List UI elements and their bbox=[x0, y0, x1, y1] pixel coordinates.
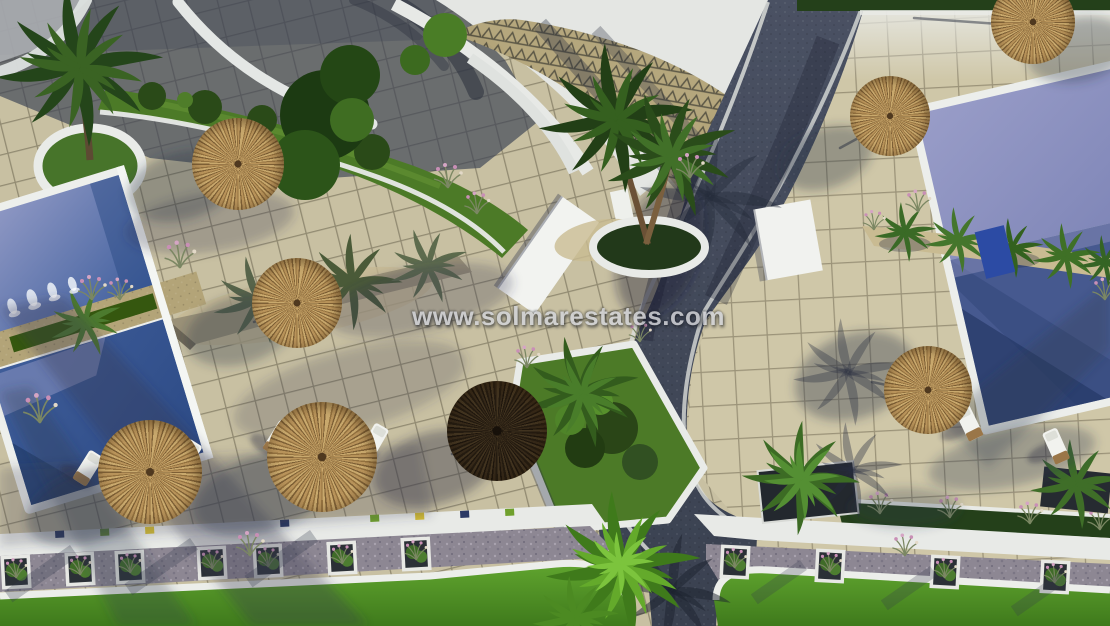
straw-umbrella-4 bbox=[267, 402, 377, 512]
straw-umbrella-5 bbox=[884, 346, 972, 434]
dark-umbrella bbox=[447, 381, 547, 481]
straw-umbrella-3 bbox=[98, 420, 202, 524]
straw-umbrella-2 bbox=[252, 258, 342, 348]
aerial-render-scene: www.solmarestates.com bbox=[0, 0, 1110, 626]
straw-umbrella-6 bbox=[850, 76, 930, 156]
watermark-text: www.solmarestates.com bbox=[412, 301, 725, 332]
straw-umbrella-1 bbox=[192, 118, 284, 210]
white-panel bbox=[747, 200, 823, 282]
